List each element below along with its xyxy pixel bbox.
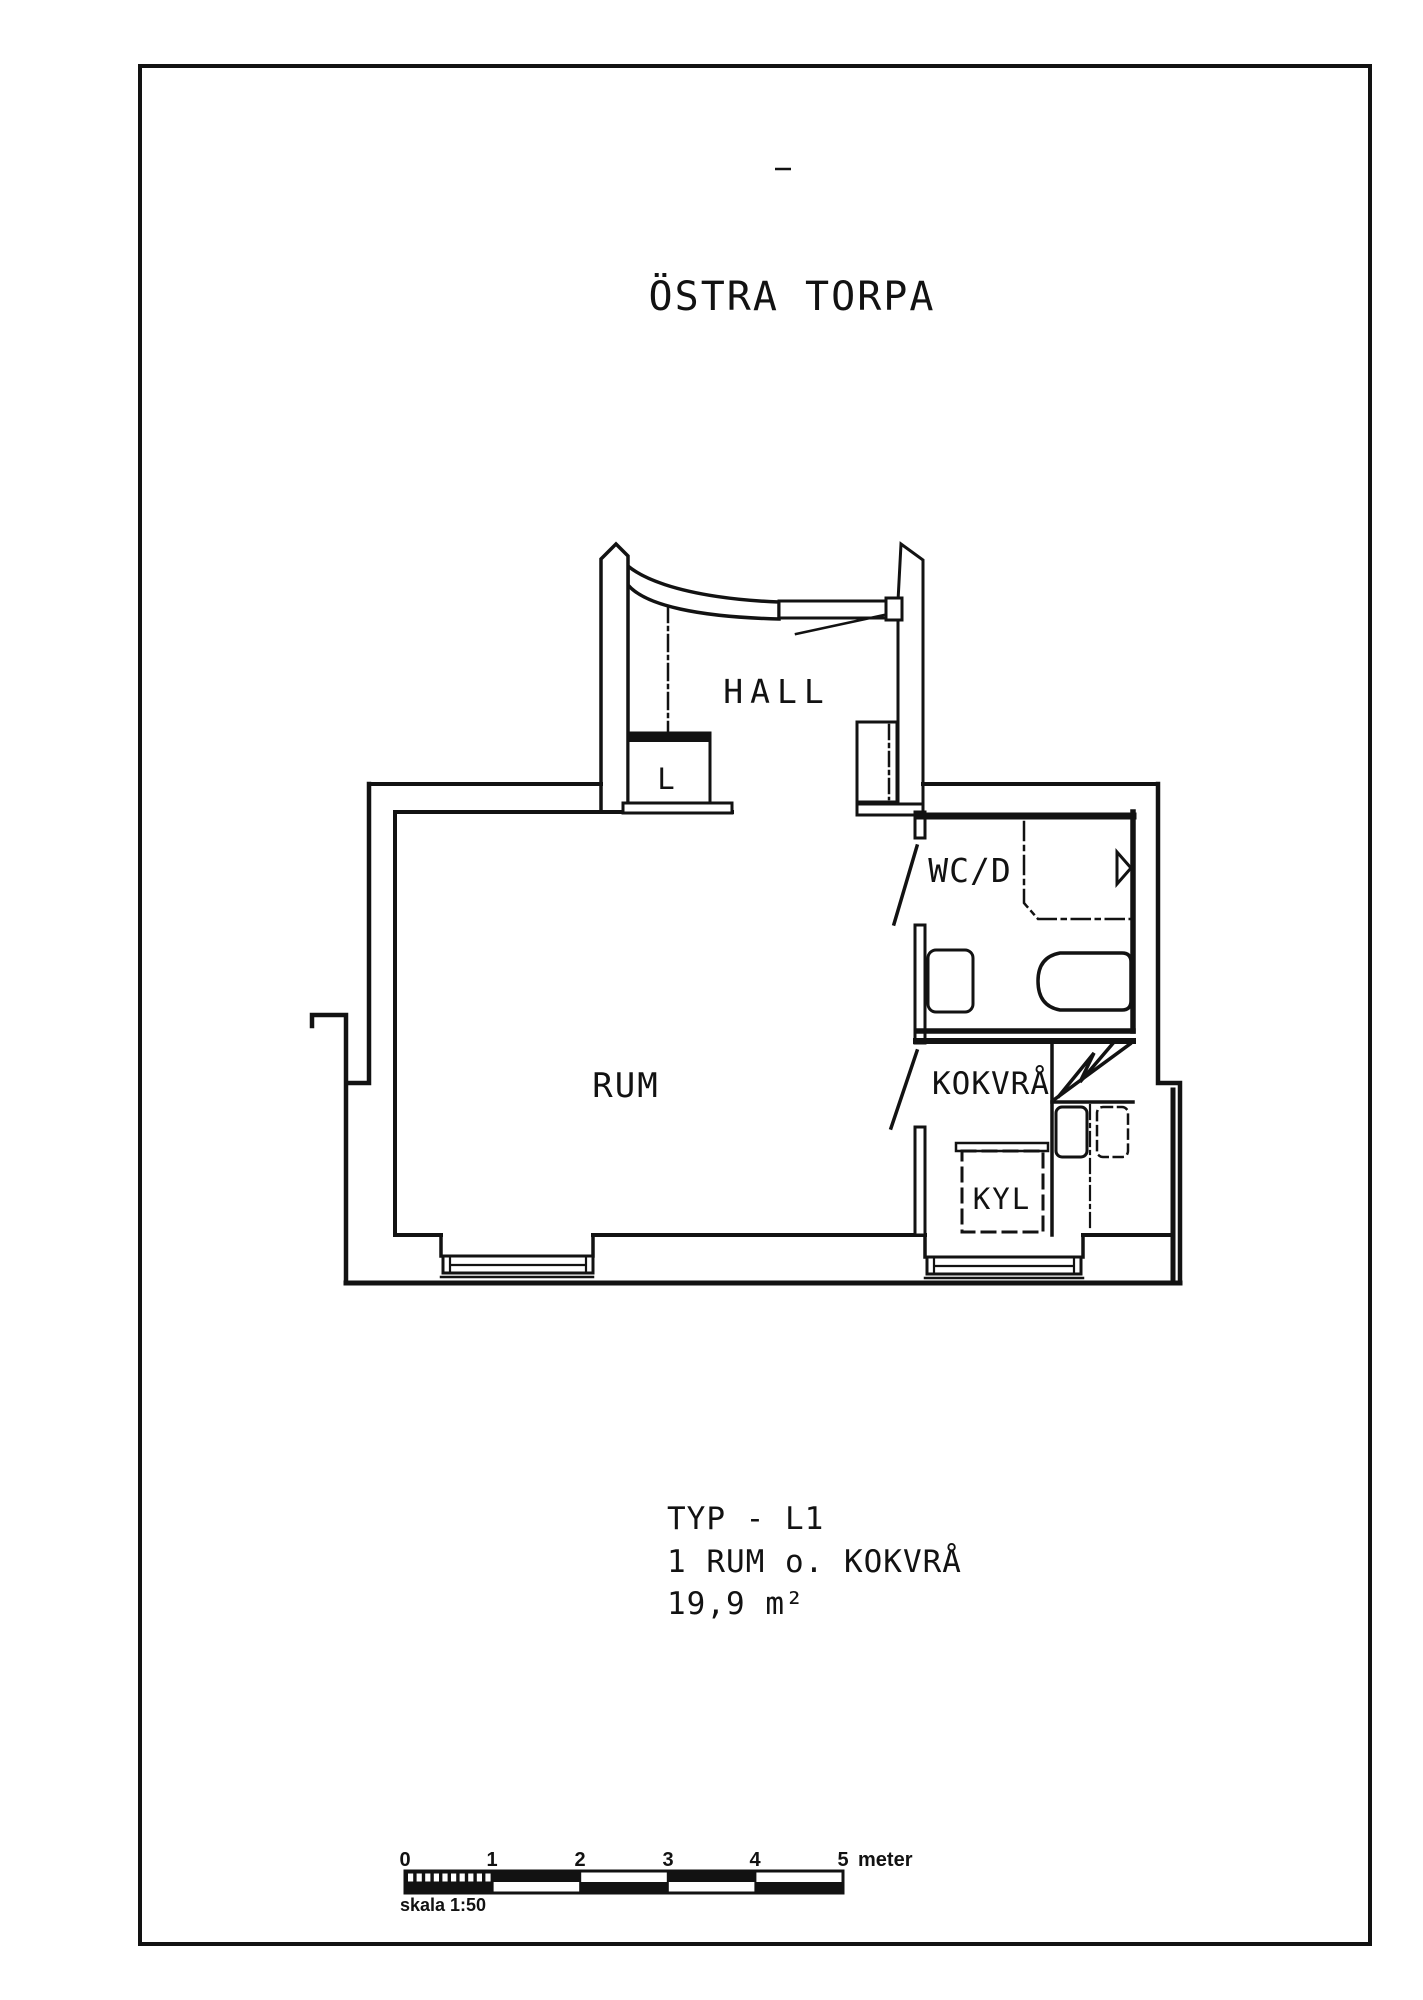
- scale-bar: 0 1 2 3 4 5 meter skala 1:50: [399, 1849, 912, 1915]
- scale-unit-label: meter: [858, 1849, 913, 1871]
- type-line: TYP - L1: [667, 1501, 824, 1537]
- scale-tick-3: 3: [662, 1849, 673, 1871]
- entrance-door-leaf: [779, 601, 887, 618]
- fridge-label: KYL: [973, 1182, 1031, 1216]
- window-jambs: [441, 1235, 593, 1256]
- scale-tick-0: 0: [399, 1849, 410, 1871]
- wc-room: [918, 812, 1133, 1031]
- kitchenette-label: KOKVRÅ: [932, 1066, 1050, 1102]
- room-window: [441, 1235, 593, 1277]
- partition-wall: [915, 812, 925, 1235]
- wardrobe-closet-front: [628, 733, 710, 742]
- entrance-door-swing-arc: [616, 544, 779, 619]
- hall-label: HALL: [723, 672, 830, 711]
- area-line: 19,9 m²: [667, 1586, 805, 1622]
- washbasin: [928, 950, 973, 1012]
- scale-seg-2: [580, 1882, 668, 1893]
- toilet: [1038, 953, 1131, 1010]
- window-jambs: [925, 1237, 1083, 1257]
- kitchenette-door-leaf: [891, 1051, 917, 1128]
- wc-label: WC/D: [928, 851, 1011, 890]
- room-label: RUM: [592, 1066, 659, 1106]
- wardrobe-base-wall: [623, 803, 732, 813]
- hall-cabinet-base-wall: [857, 804, 923, 815]
- plan-title: ÖSTRA TORPA: [649, 272, 936, 320]
- rooms-line: 1 RUM o. KOKVRÅ: [667, 1544, 962, 1580]
- hall-cabinet: [857, 722, 897, 802]
- caption-block: TYP - L1 1 RUM o. KOKVRÅ 19,9 m²: [667, 1501, 962, 1622]
- floor-drain-icon: [1117, 852, 1131, 884]
- sink: [1056, 1107, 1087, 1157]
- scale-tick-4: 4: [749, 1849, 761, 1871]
- drainboard-dashed: [1097, 1107, 1128, 1157]
- scale-tick-2: 2: [574, 1849, 585, 1871]
- kitchenette-window: [925, 1237, 1083, 1278]
- scale-seg-1: [493, 1871, 581, 1882]
- drawing-sheet: ÖSTRA TORPA: [0, 0, 1423, 2000]
- electric-stove-icon: [1059, 1041, 1115, 1096]
- partition-stub-bottom: [915, 1127, 925, 1235]
- floor-plan: HALL L WC/D RUM KOKVRÅ KYL: [312, 544, 1180, 1283]
- outer-wall-right: [1158, 784, 1180, 1283]
- shower-area-line: [1024, 822, 1131, 919]
- hall-right-wall: [898, 544, 923, 812]
- outer-wall-left: [312, 784, 369, 1283]
- entrance-door-hinge: [886, 598, 902, 620]
- wardrobe-label: L: [657, 762, 674, 796]
- sheet-border: [140, 66, 1370, 1944]
- scale-caption: skala 1:50: [400, 1895, 486, 1915]
- partition-stub-middle: [915, 925, 925, 1043]
- scale-tick-1: 1: [486, 1849, 497, 1871]
- scale-seg-3: [668, 1871, 756, 1882]
- scale-tick-5: 5: [837, 1849, 848, 1871]
- hall-left-wall: [601, 544, 628, 812]
- floor-plan-drawing: ÖSTRA TORPA: [0, 0, 1423, 2000]
- scale-seg-4: [755, 1882, 843, 1893]
- wc-door-leaf: [894, 846, 917, 924]
